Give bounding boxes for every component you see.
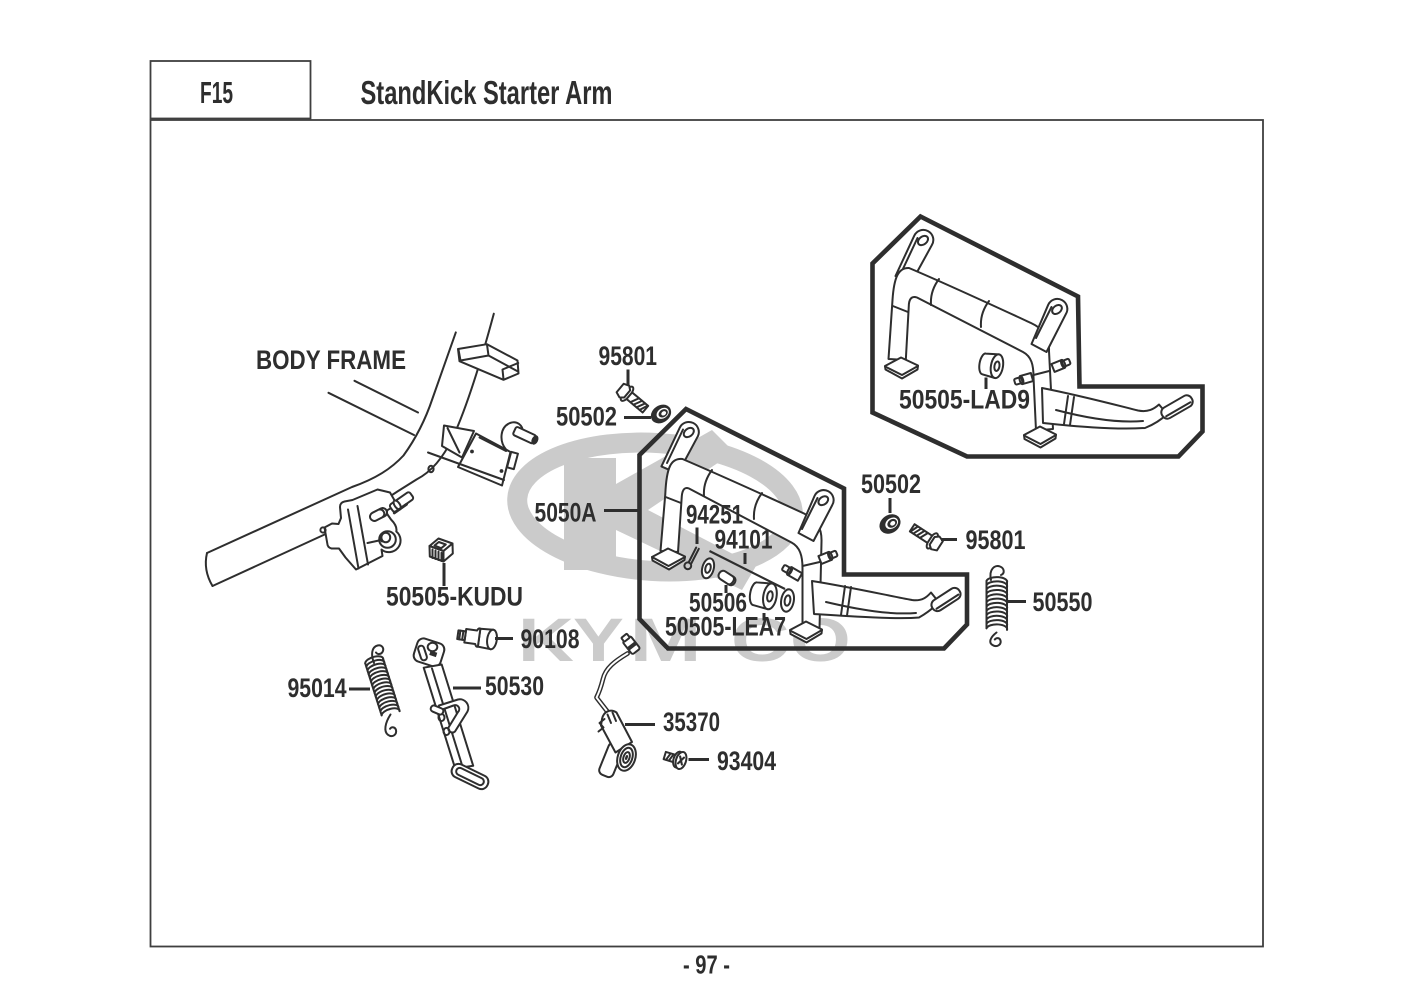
- svg-text:94101: 94101: [715, 525, 773, 555]
- svg-text:50505-LAD9: 50505-LAD9: [899, 385, 1030, 415]
- svg-text:50505-KUDU: 50505-KUDU: [386, 582, 523, 612]
- svg-text:50505-LEA7: 50505-LEA7: [665, 612, 786, 642]
- svg-text:5050A: 5050A: [535, 498, 597, 528]
- svg-text:50502: 50502: [556, 402, 617, 432]
- svg-text:50502: 50502: [861, 469, 921, 499]
- svg-text:50530: 50530: [485, 671, 544, 701]
- svg-text:50550: 50550: [1033, 587, 1093, 617]
- svg-text:95014: 95014: [288, 673, 347, 703]
- svg-text:95801: 95801: [966, 525, 1026, 555]
- svg-text:- 97 -: - 97 -: [683, 950, 730, 980]
- svg-text:35370: 35370: [663, 707, 720, 737]
- svg-text:F15: F15: [200, 75, 233, 110]
- svg-text:93404: 93404: [717, 746, 776, 776]
- svg-text:StandKick Starter Arm: StandKick Starter Arm: [361, 74, 613, 111]
- svg-text:BODY FRAME: BODY FRAME: [256, 345, 406, 375]
- svg-text:95801: 95801: [599, 341, 658, 371]
- svg-text:90108: 90108: [521, 624, 580, 654]
